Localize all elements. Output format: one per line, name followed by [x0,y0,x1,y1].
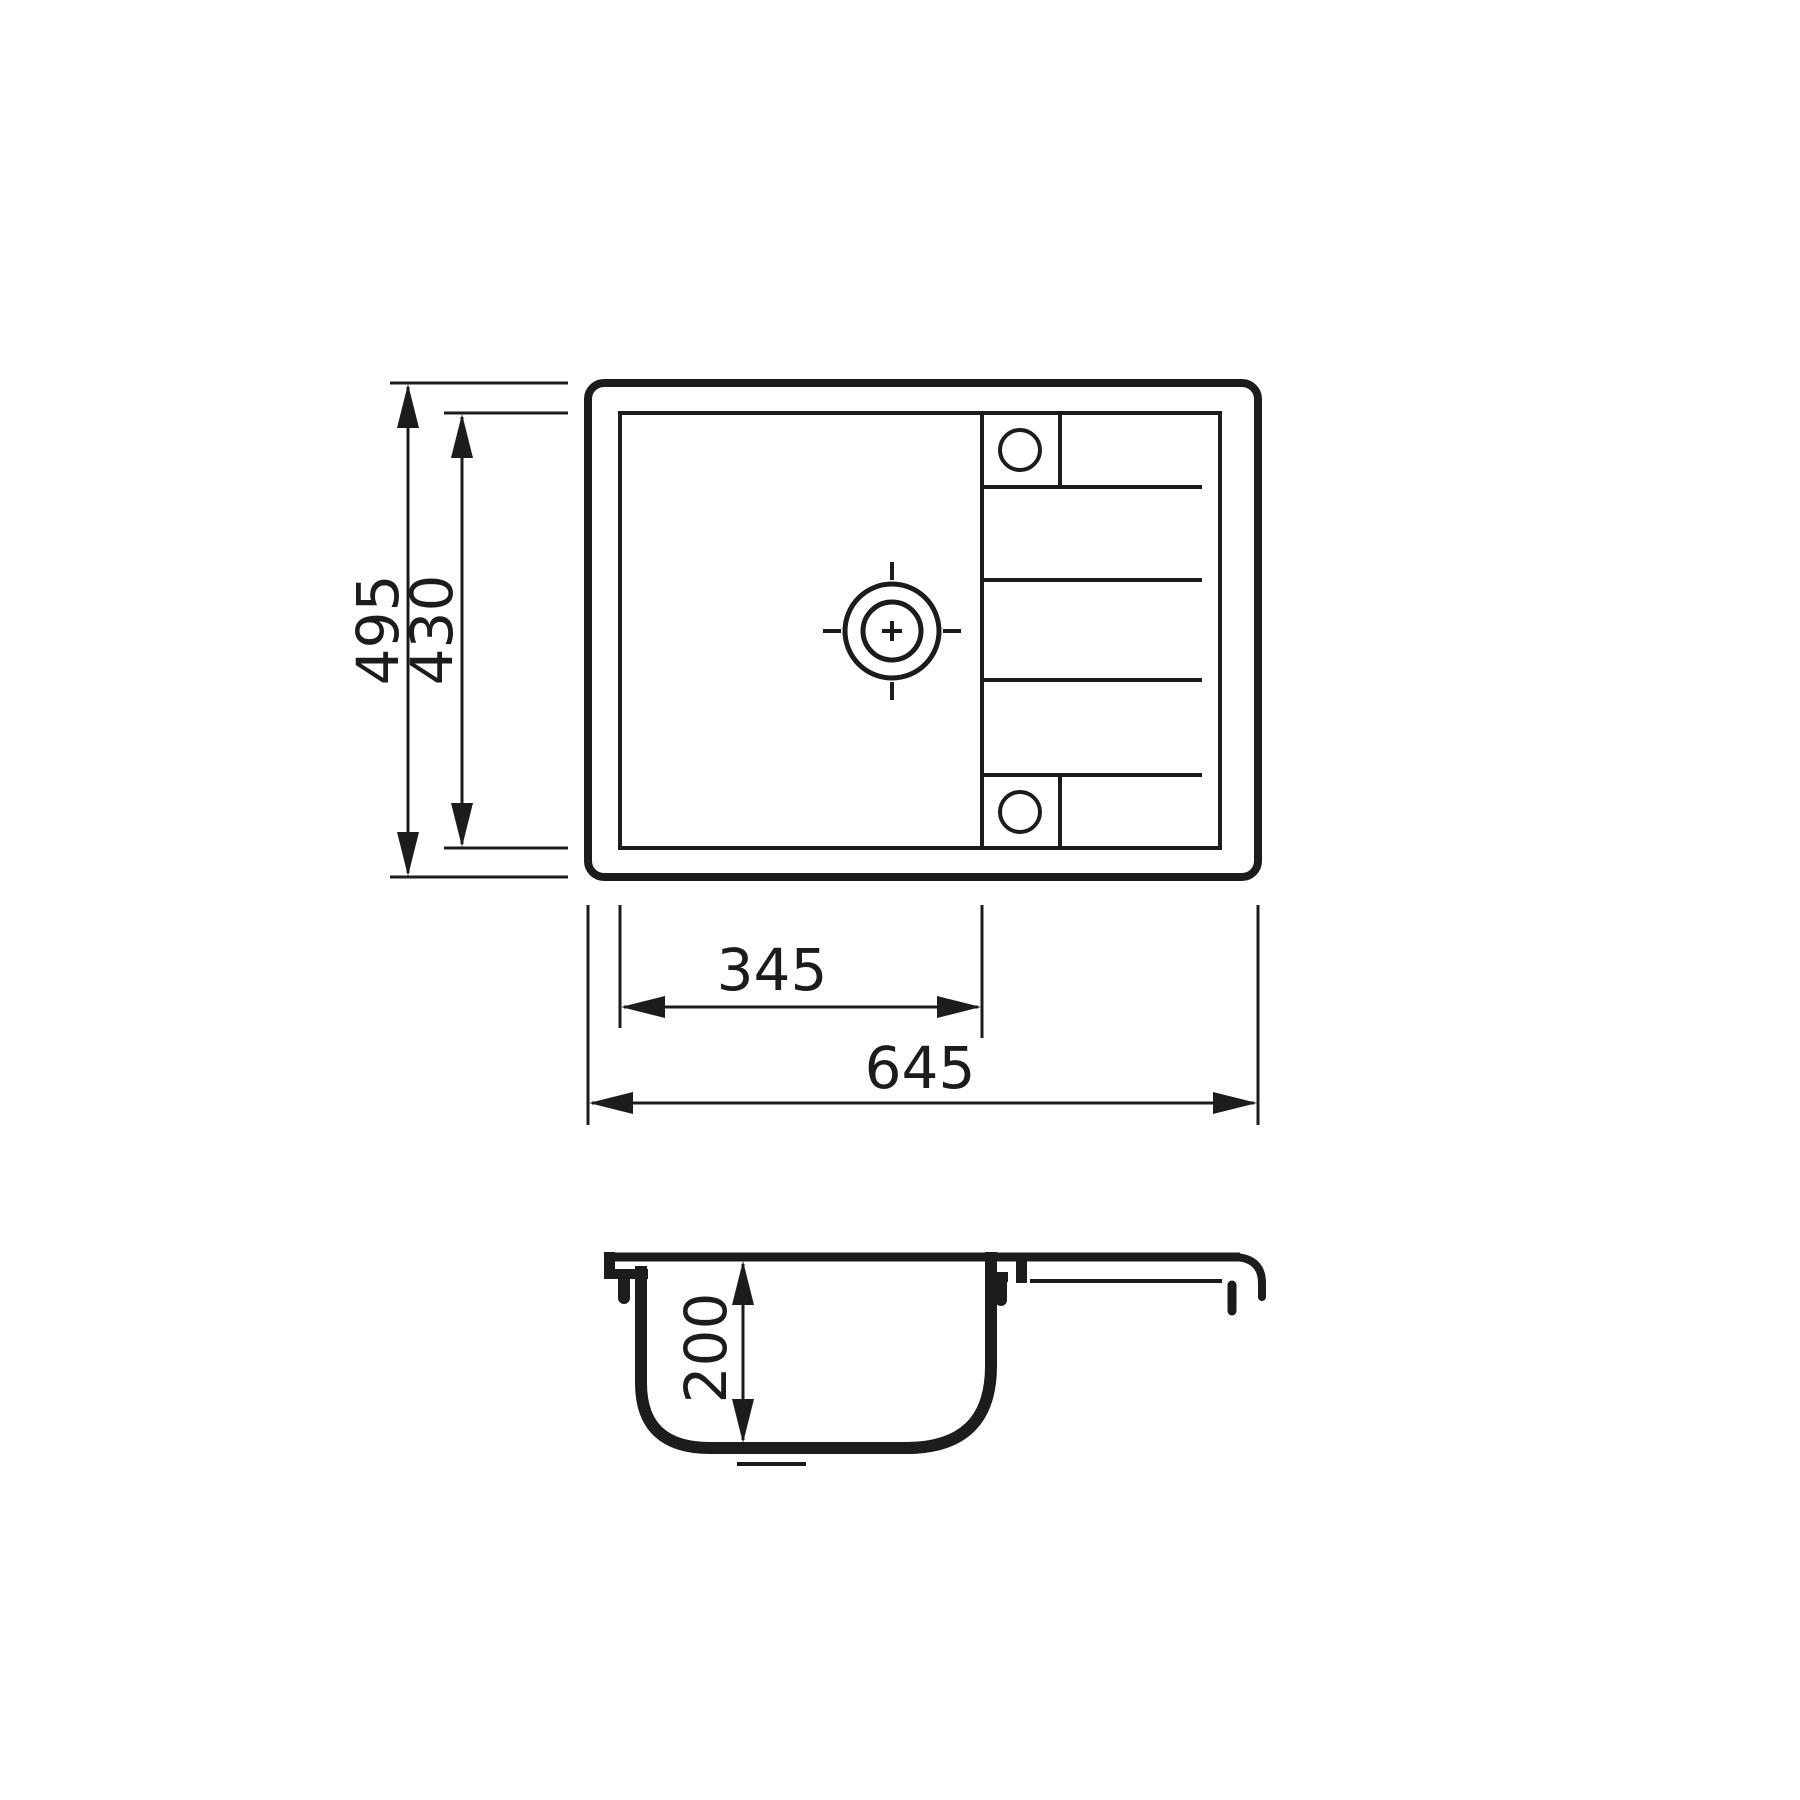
tap-hole-icon [1000,792,1040,832]
tap-hole-icon [1000,430,1040,470]
tap-hole-box-bottom [1000,775,1060,848]
drainer-front-edge [1016,1255,1027,1283]
rim-right-hook [1236,1257,1262,1297]
arrowhead-down [732,1399,754,1443]
arrowhead-up [451,414,473,458]
arrowhead-up [397,384,419,428]
arrowhead-left [621,996,665,1018]
dim-label-345: 345 [717,936,828,1004]
drawing-canvas: 495 430 345 645 [0,0,1800,1800]
dim-label-430: 430 [398,575,466,686]
arrowhead-down [451,803,473,847]
arrowhead-down [397,832,419,876]
dimension-bowl-depth: 200 [672,1261,754,1443]
faucet-hole [823,562,961,700]
dim-label-200: 200 [672,1293,740,1404]
sink-technical-drawing: 495 430 345 645 [0,0,1800,1800]
dim-label-645: 645 [865,1034,976,1102]
tap-hole-box-top [1000,413,1060,487]
dimension-bowl-width: 345 [620,905,982,1038]
arrowhead-left [589,1092,633,1114]
dimension-inner-height: 430 [398,413,568,848]
drainer-grooves [982,487,1202,775]
side-view: 200 [604,1252,1262,1464]
arrowhead-right [1213,1092,1257,1114]
dimension-overall-width: 645 [588,905,1258,1125]
top-view [588,383,1258,877]
arrowhead-right [937,996,981,1018]
